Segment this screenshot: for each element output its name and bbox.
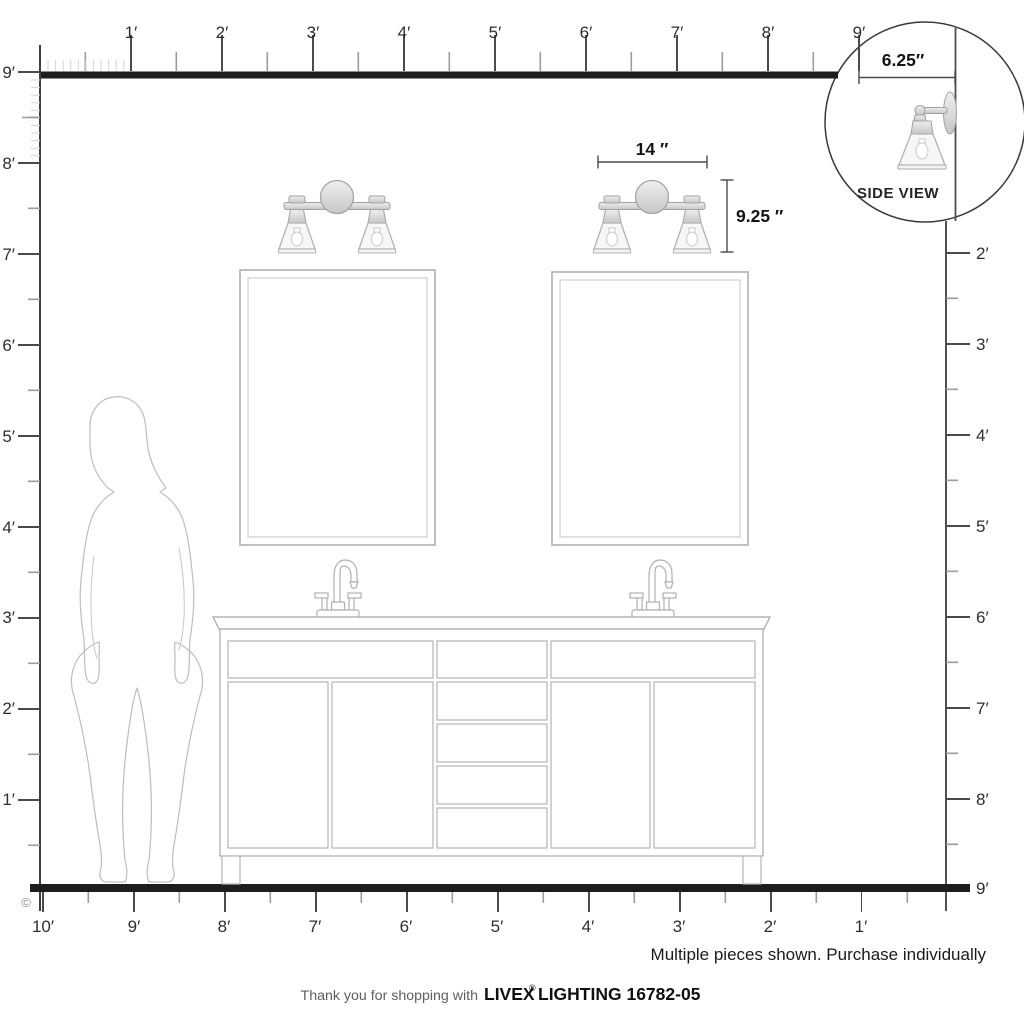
ruler-label: 8′ <box>762 23 775 42</box>
center-drawer <box>437 724 547 762</box>
bulb <box>687 232 698 246</box>
top-ruler: 1′ 2′ 3′ 4′ 5′ 6′ 7′ 8′ 9′ <box>40 23 865 79</box>
ruler-label: 3′ <box>673 917 686 936</box>
shade-lip <box>674 249 711 253</box>
center-drawer <box>437 766 547 804</box>
shade-lip <box>594 249 631 253</box>
side-view-inset: 6.25″ SIDE VIEW <box>825 22 1024 222</box>
ruler-label: 5′ <box>489 23 502 42</box>
ruler-label: 7′ <box>671 23 684 42</box>
ruler-label: 2′ <box>2 699 15 718</box>
ruler-label: 9′ <box>2 63 15 82</box>
ruler-label: 3′ <box>2 608 15 627</box>
ruler-label: 2′ <box>216 23 229 42</box>
left-ruler: 9′ 8′ 7′ 6′ 5′ 4′ 3′ 2′ 1′ <box>2 45 40 911</box>
fixture-backplate <box>321 181 354 214</box>
faucet-handle-stem <box>322 597 327 610</box>
ruler-label: 5′ <box>491 917 504 936</box>
mirror-glass <box>560 280 740 537</box>
fixture-end-cap <box>289 196 305 203</box>
countertop <box>213 617 770 629</box>
center-drawer <box>437 682 547 720</box>
center-drawer <box>437 808 547 848</box>
ruler-label: 3′ <box>976 335 989 354</box>
ruler-label: 2′ <box>976 244 989 263</box>
ruler-label: 5′ <box>2 427 15 446</box>
copyright-mark: © <box>21 895 31 910</box>
ruler-label: 9′ <box>128 917 141 936</box>
faucet-handle-lever <box>315 593 328 598</box>
ruler-label: 1′ <box>855 917 868 936</box>
side-view-title: SIDE VIEW <box>857 185 939 202</box>
faucet-spout-tip <box>350 582 358 588</box>
faucet-handle-stem <box>664 597 669 610</box>
bulb <box>607 232 618 246</box>
sconce-fitter <box>911 121 933 134</box>
sconce-bulb <box>916 143 928 159</box>
faucet-handle-lever <box>630 593 643 598</box>
cabinet-leg <box>222 856 240 884</box>
faucet-spout-tip <box>665 582 673 588</box>
ruler-label: 10′ <box>32 917 54 936</box>
shade-fitter <box>368 210 386 224</box>
shade-fitter <box>288 210 306 224</box>
fixture-backplate <box>636 181 669 214</box>
faucet-right <box>630 560 676 618</box>
faucet-handle-stem <box>349 597 354 610</box>
bulb <box>372 232 383 246</box>
ruler-label: 8′ <box>976 790 989 809</box>
cabinet-door <box>332 682 433 848</box>
width-dimension-label: 14 ″ <box>636 139 669 159</box>
ruler-label: 4′ <box>2 518 15 537</box>
bulb <box>292 232 303 246</box>
product-number-text: LIGHTING 16782-05 <box>538 984 701 1004</box>
shade-fitter <box>683 210 701 224</box>
shade-lip <box>359 249 396 253</box>
faucet-handle-lever <box>663 593 676 598</box>
mirror-glass <box>248 278 427 537</box>
vanity-light-right <box>594 181 711 254</box>
center-drawer <box>437 641 547 678</box>
ruler-label: 7′ <box>976 699 989 718</box>
width-dimension: 14 ″ <box>598 139 707 169</box>
faucet-collar <box>332 602 345 610</box>
footer: Thank you for shopping with LIVEX ® LIGH… <box>301 983 701 1004</box>
ruler-label: 4′ <box>398 23 411 42</box>
cabinet-door <box>551 682 650 848</box>
depth-dimension-label: 6.25″ <box>882 50 925 70</box>
silhouette-outline <box>72 397 203 882</box>
dimension-diagram: 6.25″ SIDE VIEW 1′ 2′ 3′ 4′ 5′ 6′ 7′ 8′ … <box>0 0 1024 1024</box>
ruler-label: 7′ <box>2 245 15 264</box>
faucet-left <box>315 560 361 618</box>
cabinet-door <box>228 682 328 848</box>
ruler-label: 9′ <box>976 879 989 898</box>
purchase-note: Multiple pieces shown. Purchase individu… <box>651 945 987 964</box>
shade-fitter <box>603 210 621 224</box>
bottom-ruler: 10′ 9′ 8′ 7′ 6′ 5′ 4′ 3′ 2′ 1′ © <box>21 884 970 936</box>
false-drawer-front-left <box>228 641 433 678</box>
ruler-label: 7′ <box>309 917 322 936</box>
height-dimension-label: 9.25 ″ <box>736 206 784 226</box>
faucet-handle-lever <box>348 593 361 598</box>
mirror-left <box>240 270 435 545</box>
ruler-label: 1′ <box>2 790 15 809</box>
ruler-label: 4′ <box>976 426 989 445</box>
vanity-cabinet <box>213 617 770 884</box>
ruler-label: 3′ <box>307 23 320 42</box>
right-ruler: 2′ 3′ 4′ 5′ 6′ 7′ 8′ 9′ <box>946 221 989 911</box>
ruler-label: 8′ <box>218 917 231 936</box>
faucet-collar <box>647 602 660 610</box>
ruler-label: 6′ <box>400 917 413 936</box>
height-dimension: 9.25 ″ <box>721 180 784 252</box>
shade-lip <box>279 249 316 253</box>
mirror-right <box>552 272 748 545</box>
fixture-end-cap <box>604 196 620 203</box>
ruler-label: 6′ <box>976 608 989 627</box>
ruler-label: 4′ <box>582 917 595 936</box>
ruler-label: 5′ <box>976 517 989 536</box>
ruler-label: 6′ <box>2 336 15 355</box>
floor-bar <box>30 884 970 892</box>
footer-prefix-text: Thank you for shopping with <box>301 988 478 1004</box>
ceiling-bar <box>40 72 838 79</box>
fixture-end-cap <box>684 196 700 203</box>
ruler-label: 6′ <box>580 23 593 42</box>
registered-mark: ® <box>529 983 536 993</box>
diagram-canvas: 6.25″ SIDE VIEW 1′ 2′ 3′ 4′ 5′ 6′ 7′ 8′ … <box>0 0 1024 1024</box>
sconce-ball-joint <box>915 106 925 116</box>
cabinet-door <box>654 682 755 848</box>
fixture-end-cap <box>369 196 385 203</box>
sconce-shade-lip <box>898 165 946 169</box>
faucet-handle-stem <box>637 597 642 610</box>
ruler-label: 2′ <box>764 917 777 936</box>
cabinet-leg <box>743 856 761 884</box>
ruler-label: 9′ <box>853 23 866 42</box>
vanity-light-left <box>279 181 396 254</box>
ruler-label: 1′ <box>125 23 138 42</box>
false-drawer-front-right <box>551 641 755 678</box>
brand-name: LIVEX <box>484 984 535 1004</box>
sconce-neck <box>914 115 926 121</box>
human-silhouette <box>72 397 203 882</box>
ruler-label: 8′ <box>2 154 15 173</box>
